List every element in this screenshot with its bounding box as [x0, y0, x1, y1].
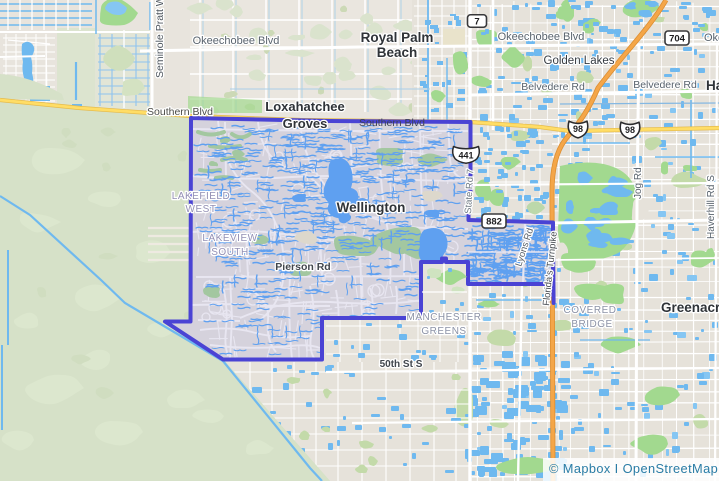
- svg-text:98: 98: [573, 124, 583, 134]
- svg-text:Pierson Rd: Pierson Rd: [275, 261, 330, 273]
- svg-text:LAKEFIELD: LAKEFIELD: [172, 191, 230, 202]
- svg-text:WEST: WEST: [186, 204, 217, 215]
- svg-text:441: 441: [458, 151, 473, 161]
- svg-text:© Mapbox I OpenStreetMap: © Mapbox I OpenStreetMap: [549, 461, 718, 476]
- svg-text:Belvedere Rd: Belvedere Rd: [521, 81, 585, 93]
- svg-text:Beach: Beach: [377, 45, 418, 60]
- svg-text:Jog Rd: Jog Rd: [633, 167, 644, 199]
- svg-text:MANCHESTER: MANCHESTER: [406, 312, 481, 323]
- svg-text:704: 704: [669, 34, 686, 45]
- svg-text:Greenacres: Greenacres: [661, 300, 719, 315]
- svg-text:Groves: Groves: [283, 116, 328, 131]
- svg-text:Seminole Pratt W: Seminole Pratt W: [154, 0, 166, 78]
- svg-text:Haverhill Rd S: Haverhill Rd S: [706, 175, 717, 239]
- svg-text:Golden Lakes: Golden Lakes: [544, 55, 615, 67]
- svg-text:Southern Blvd: Southern Blvd: [147, 106, 213, 118]
- svg-text:BRIDGE: BRIDGE: [571, 319, 612, 330]
- svg-text:Ha: Ha: [706, 78, 719, 93]
- svg-text:Royal Palm: Royal Palm: [361, 30, 434, 45]
- svg-text:Okeechobee Blvd: Okeechobee Blvd: [498, 31, 585, 43]
- svg-text:State Rd 7: State Rd 7: [463, 169, 476, 214]
- svg-text:SOUTH: SOUTH: [211, 247, 249, 258]
- svg-text:882: 882: [486, 217, 502, 228]
- svg-text:98: 98: [625, 125, 635, 135]
- svg-text:LAKEVIEW: LAKEVIEW: [202, 233, 257, 244]
- svg-text:COVERED: COVERED: [564, 305, 617, 316]
- svg-text:Okeechobee Blvd: Okeechobee Blvd: [193, 35, 280, 47]
- svg-text:Okee: Okee: [704, 32, 719, 44]
- svg-text:GREENS: GREENS: [421, 326, 466, 337]
- svg-text:Southern Blvd: Southern Blvd: [359, 117, 425, 129]
- svg-text:Belvedere Rd: Belvedere Rd: [633, 79, 697, 91]
- svg-text:Loxahatchee: Loxahatchee: [265, 99, 344, 114]
- svg-text:7: 7: [474, 17, 479, 28]
- svg-text:Wellington: Wellington: [337, 200, 406, 215]
- svg-text:50th St S: 50th St S: [380, 359, 423, 370]
